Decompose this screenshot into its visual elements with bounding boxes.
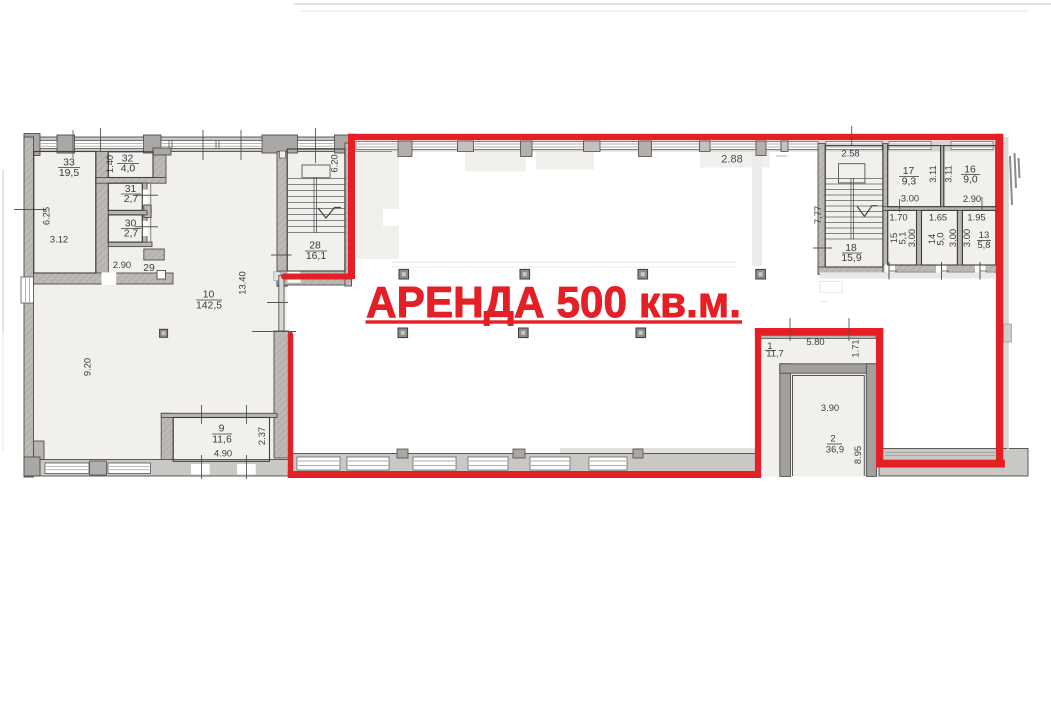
svg-text:1.40: 1.40	[104, 155, 115, 173]
svg-text:1.70: 1.70	[889, 212, 907, 223]
svg-text:1.65: 1.65	[929, 212, 947, 223]
svg-text:2: 2	[830, 433, 835, 444]
svg-text:9,3: 9,3	[902, 177, 917, 188]
svg-text:5.80: 5.80	[806, 336, 824, 347]
svg-text:33: 33	[63, 158, 75, 169]
svg-text:3.00: 3.00	[901, 193, 919, 204]
svg-text:2.58: 2.58	[841, 148, 859, 159]
svg-text:1.71: 1.71	[850, 339, 861, 357]
svg-text:5,0: 5,0	[935, 232, 946, 245]
svg-text:142,5: 142,5	[196, 301, 222, 312]
svg-text:16,1: 16,1	[306, 251, 326, 262]
svg-text:10: 10	[203, 290, 215, 301]
svg-text:9: 9	[219, 424, 225, 435]
svg-text:4.90: 4.90	[214, 448, 232, 459]
svg-text:2,7: 2,7	[124, 194, 139, 205]
svg-text:29: 29	[143, 263, 155, 274]
svg-text:28: 28	[309, 241, 321, 252]
svg-text:3.90: 3.90	[821, 402, 839, 413]
svg-text:2.88: 2.88	[721, 154, 742, 166]
svg-text:3.00: 3.00	[947, 229, 958, 247]
svg-text:11,6: 11,6	[212, 435, 232, 446]
svg-text:6.25: 6.25	[41, 207, 52, 225]
svg-text:2.90: 2.90	[963, 193, 981, 204]
svg-text:3.11: 3.11	[943, 165, 954, 183]
svg-text:13.40: 13.40	[237, 271, 248, 294]
svg-text:2.90: 2.90	[113, 259, 131, 270]
svg-text:2,7: 2,7	[124, 229, 139, 240]
svg-text:11,7: 11,7	[766, 348, 784, 359]
svg-text:6.20: 6.20	[329, 154, 340, 172]
svg-text:15,9: 15,9	[841, 253, 861, 264]
svg-text:8.95: 8.95	[852, 446, 863, 464]
svg-text:7,77: 7,77	[812, 206, 823, 224]
svg-text:3.11: 3.11	[927, 165, 938, 183]
svg-text:4,0: 4,0	[121, 164, 136, 175]
svg-text:17: 17	[903, 166, 915, 177]
svg-text:АРЕНДА 500 кв.м.: АРЕНДА 500 кв.м.	[366, 278, 741, 327]
svg-text:19,5: 19,5	[59, 168, 79, 179]
svg-text:3.00: 3.00	[961, 229, 972, 247]
svg-text:3.00: 3.00	[906, 229, 917, 247]
svg-text:9,0: 9,0	[963, 175, 978, 186]
svg-text:9.20: 9.20	[82, 358, 93, 376]
svg-text:36,9: 36,9	[826, 444, 844, 455]
svg-text:1.95: 1.95	[967, 212, 985, 223]
svg-text:3.12: 3.12	[50, 234, 68, 245]
svg-text:2.37: 2.37	[256, 427, 267, 445]
